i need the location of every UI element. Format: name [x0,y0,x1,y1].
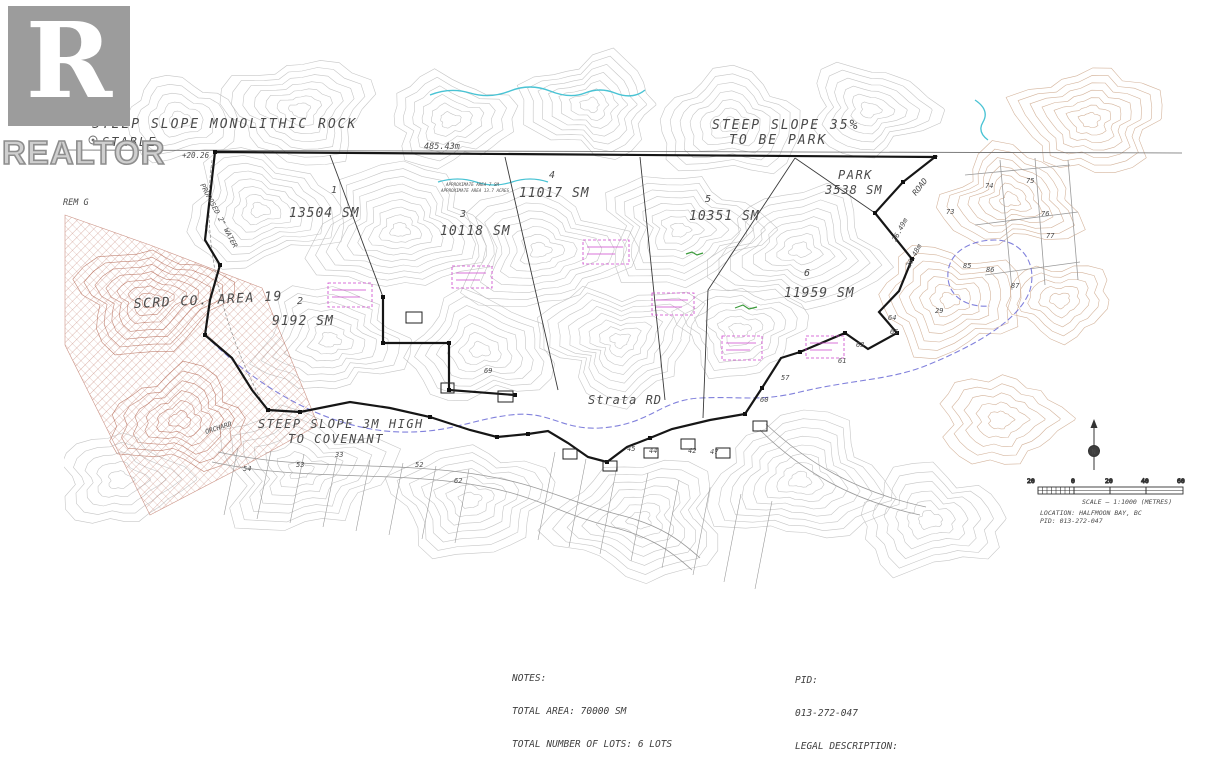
scale-tick-20r: 20 [1105,477,1113,485]
adjacent-lot-number: 54 [243,465,251,473]
realtor-logo-letter: R [26,9,112,113]
adjacent-lot-number: 57 [781,374,790,382]
legal-description-title: LEGAL DESCRIPTION: [795,741,989,752]
lot-6-area: 11959 SM [784,286,855,301]
adjacent-lot-number: 77 [1046,232,1055,240]
lot-1-number: 1 [331,185,337,196]
label-covenant-2: TO COVENANT [288,432,384,446]
adjacent-lot-number: 53 [296,461,304,469]
adjacent-lot-number: 73 [946,208,954,216]
lot-4-number: 4 [549,170,555,181]
label-covenant-1: STEEP SLOPE 3M HIGH [258,417,424,431]
notes-block: NOTES: TOTAL AREA: 70000 SM TOTAL NUMBER… [512,651,706,760]
lot-1-area: 13504 SM [289,206,360,221]
label-park-area: 3538 SM [824,183,883,197]
adjacent-lot-number: 47 [710,448,719,456]
adjacent-lot-number: 85 [963,262,971,270]
scale-tick-20l: 20 [1027,477,1035,485]
realtor-logo: R REALTOR [8,6,178,172]
survey-plan-page: STEEP SLOPE MONOLITHIC ROCK STABLE STEEP… [0,0,1221,760]
lot-5-area: 10351 SM [689,209,760,224]
lot-3-area: 10118 SM [440,224,511,239]
adjacent-lot-number: 63 [856,341,864,349]
adjacent-lot-number: 76 [1041,210,1049,218]
label-spot-elevation: +20.26 [182,151,210,160]
pid-value: 013-272-047 [795,708,989,719]
adjacent-lot-number: 44 [649,447,657,455]
scale-location: LOCATION: HALFMOON BAY, BC [1040,509,1142,517]
pid-title: PID: [795,675,989,686]
adjacent-lot-number: 75 [1026,177,1034,185]
label-top-dimension: 485.43m [424,142,460,152]
notes-total-lots: TOTAL NUMBER OF LOTS: 6 LOTS [512,739,706,750]
adjacent-lot-number: 86 [986,266,994,274]
adjacent-lot-number: 45 [627,445,635,453]
adjacent-lot-number: 52 [415,461,423,469]
adjacent-lot-number: 61 [838,357,846,365]
adjacent-lot-number: 65 [890,328,898,336]
north-label: N [1092,448,1096,456]
scale-tick-60: 60 [1177,477,1185,485]
adjacent-lot-number: 29 [935,307,943,315]
adjacent-lot-number: 62 [454,477,462,485]
adjacent-lot-number: 64 [888,314,896,322]
legal-block: PID: 013-272-047 LEGAL DESCRIPTION: DIST… [795,653,989,760]
lot-5-number: 5 [705,194,711,205]
scale-bar: 20 0 20 40 60 SCALE — 1:1000 (METRES) LO… [1027,477,1185,525]
scale-tick-40: 40 [1141,477,1149,485]
red-hatch-area [65,215,318,515]
lot-3-number: 3 [459,209,466,220]
lot-4-area: 11017 SM [519,186,590,201]
label-dim-b: 26.48m [905,242,924,269]
scale-tick-0: 0 [1071,477,1075,485]
label-road: ROAD [910,176,929,197]
creek-lines [430,87,988,185]
label-water-note-1: APPROXIMATE AREA 7 SM [445,182,499,187]
adjacent-lot-number: 69 [484,367,492,375]
lot-2-area: 9192 SM [272,314,334,329]
vegetation-marks [686,252,757,309]
notes-total-area: TOTAL AREA: 70000 SM [512,706,706,717]
label-park: PARK [838,168,873,182]
label-dim-a: 26.49m [891,216,910,243]
adjacent-lot-number: 42 [688,447,696,455]
adjacent-lot-number: 74 [985,182,993,190]
label-steep-slope-park-2: TO BE PARK [729,133,827,148]
scale-pid: PID: 013-272-047 [1040,517,1103,525]
adjacent-lot-number: 60 [760,396,768,404]
lot-6-number: 6 [804,268,810,279]
label-water-note-2: APPROXIMATE AREA 13.7 ACRES [440,188,510,193]
north-arrow: N [1089,419,1100,470]
scale-caption: SCALE — 1:1000 (METRES) [1082,498,1172,506]
realtor-logo-box: R [8,6,130,126]
adjacent-lot-number: 87 [1011,282,1020,290]
realtor-logo-text: REALTOR [2,134,178,172]
adjacent-lot-number: 33 [334,451,343,459]
survey-map: STEEP SLOPE MONOLITHIC ROCK STABLE STEEP… [0,0,1221,760]
label-rem-g: REM G [63,198,89,208]
label-strata-rd: Strata RD [588,393,662,407]
lot-2-number: 2 [297,296,303,307]
notes-title: NOTES: [512,673,706,684]
label-steep-slope-park-1: STEEP SLOPE 35% [712,118,859,133]
